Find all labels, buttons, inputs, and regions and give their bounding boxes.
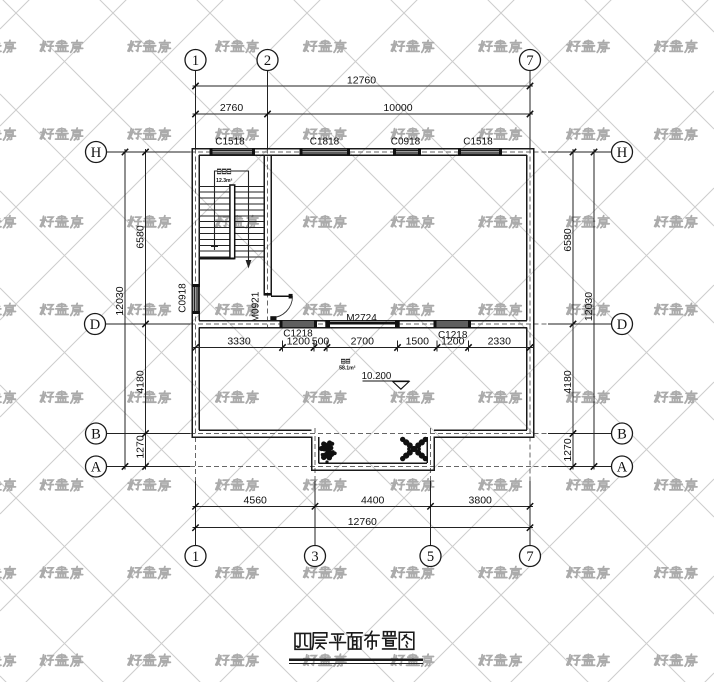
svg-text:6580: 6580 xyxy=(562,228,574,252)
svg-text:1270: 1270 xyxy=(135,435,147,459)
svg-text:6580: 6580 xyxy=(135,225,147,249)
svg-text:D: D xyxy=(617,317,627,333)
svg-text:12030: 12030 xyxy=(114,286,126,315)
svg-text:4400: 4400 xyxy=(361,495,385,507)
svg-text:3: 3 xyxy=(311,549,318,565)
svg-text:4560: 4560 xyxy=(244,495,268,507)
svg-text:C0918: C0918 xyxy=(178,283,189,313)
svg-text:C0918: C0918 xyxy=(391,137,421,148)
svg-text:5: 5 xyxy=(427,549,434,565)
svg-text:2760: 2760 xyxy=(220,102,244,114)
svg-text:1270: 1270 xyxy=(562,438,574,462)
svg-text:C1818: C1818 xyxy=(310,137,340,148)
svg-text:10000: 10000 xyxy=(383,102,412,114)
svg-text:H: H xyxy=(91,145,102,161)
svg-text:A: A xyxy=(617,460,628,476)
svg-text:12760: 12760 xyxy=(348,516,377,528)
svg-text:C1518: C1518 xyxy=(463,137,493,148)
svg-text:B: B xyxy=(617,427,627,443)
svg-text:4180: 4180 xyxy=(562,370,574,394)
svg-text:12030: 12030 xyxy=(583,292,595,321)
svg-text:1200: 1200 xyxy=(441,336,465,348)
svg-text:2700: 2700 xyxy=(351,336,375,348)
svg-text:7: 7 xyxy=(526,549,533,565)
svg-text:H: H xyxy=(617,145,628,161)
svg-text:M0921: M0921 xyxy=(251,291,262,322)
svg-text:2330: 2330 xyxy=(488,336,512,348)
svg-text:C1518: C1518 xyxy=(215,137,245,148)
svg-text:12.3m²: 12.3m² xyxy=(216,178,232,184)
svg-text:7: 7 xyxy=(526,53,533,69)
svg-text:10.200: 10.200 xyxy=(362,371,392,382)
svg-text:1: 1 xyxy=(192,53,199,69)
svg-text:2: 2 xyxy=(264,53,271,69)
svg-text:4180: 4180 xyxy=(135,370,147,394)
svg-text:1: 1 xyxy=(192,549,199,565)
svg-text:58.1m²: 58.1m² xyxy=(339,365,356,371)
svg-text:3330: 3330 xyxy=(227,336,251,348)
svg-text:M2724: M2724 xyxy=(346,313,377,324)
svg-text:3800: 3800 xyxy=(469,495,493,507)
svg-text:A: A xyxy=(91,460,102,476)
svg-text:1500: 1500 xyxy=(406,336,430,348)
svg-text:12760: 12760 xyxy=(347,75,376,87)
svg-text:1200: 1200 xyxy=(287,336,311,348)
svg-text:B: B xyxy=(91,427,101,443)
svg-text:D: D xyxy=(90,317,100,333)
svg-text:500: 500 xyxy=(312,336,330,348)
